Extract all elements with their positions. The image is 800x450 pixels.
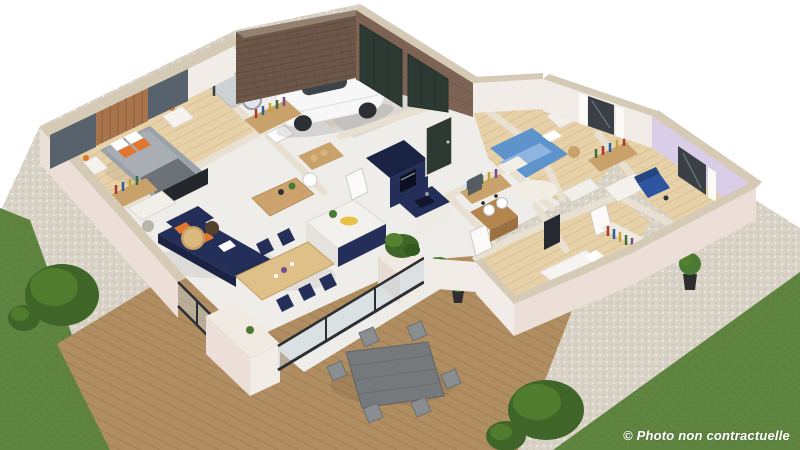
sideboard-plant	[289, 183, 296, 190]
table-carafe	[281, 267, 287, 273]
desk-chair	[142, 220, 154, 232]
lamp-left	[83, 155, 89, 161]
table-plate-1	[274, 274, 278, 278]
basket-1	[311, 155, 318, 162]
bedroom2-chair	[568, 146, 580, 158]
front-door-handle	[447, 141, 450, 144]
laundry-basket	[303, 173, 317, 187]
basin-right	[497, 198, 508, 209]
faucet	[425, 192, 429, 196]
faucet-right	[494, 194, 498, 198]
floor-lamp	[664, 196, 669, 201]
floorplan-render: © Photo non contractuelle	[0, 0, 800, 450]
bedroom2-curtain-right	[616, 106, 624, 139]
pillar-plant	[246, 326, 254, 334]
coffee-table-small	[205, 221, 219, 235]
bedroom3-curtain	[708, 167, 716, 202]
island-plant	[329, 210, 337, 218]
basin-left	[484, 205, 495, 216]
bottom-shrub-small	[486, 421, 526, 450]
basket-2	[321, 150, 328, 157]
sideboard-vase	[278, 189, 284, 195]
coffee-table-large-top	[184, 229, 203, 248]
left-shrub-small	[8, 305, 40, 331]
bedroom2-rug	[514, 180, 558, 200]
faucet-left	[481, 201, 485, 205]
table-plate-2	[290, 262, 294, 266]
terrace-connector-wall	[424, 258, 476, 292]
bedroom2-curtain-left	[579, 93, 587, 126]
lemon-tray	[340, 217, 358, 226]
floorplan-svg	[0, 0, 800, 450]
entry-north-wall	[473, 79, 543, 113]
photo-watermark: © Photo non contractuelle	[623, 428, 790, 443]
